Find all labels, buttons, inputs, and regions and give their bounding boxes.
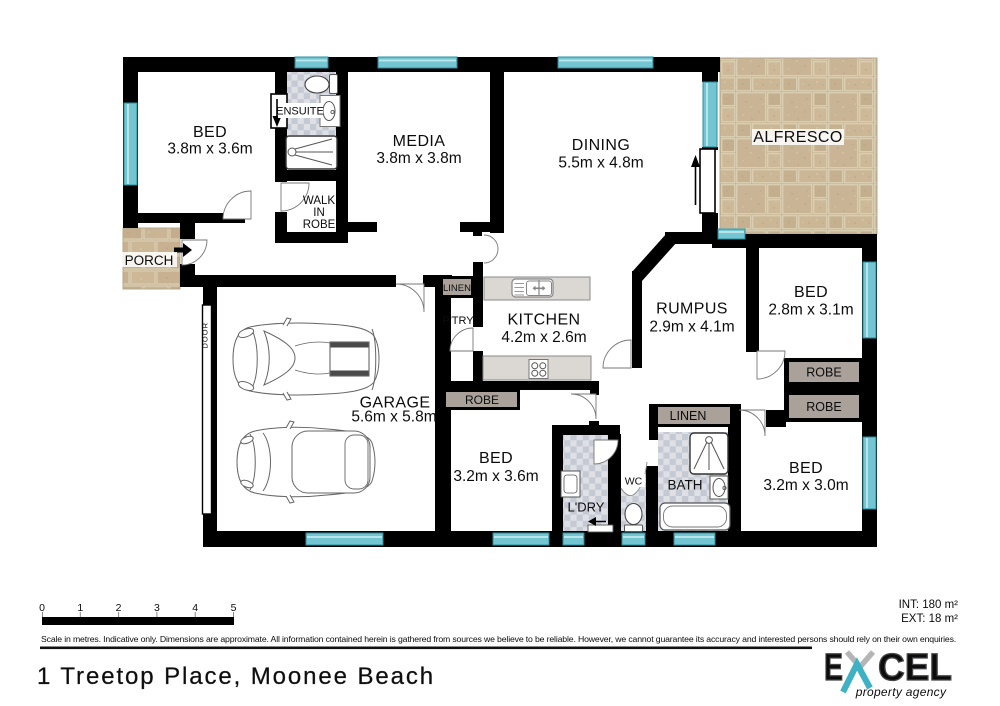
svg-text:ALFRESCO: ALFRESCO [753, 129, 842, 146]
svg-text:LINEN: LINEN [443, 283, 471, 294]
svg-text:3.8m x 3.6m: 3.8m x 3.6m [167, 141, 252, 158]
svg-text:CEL: CEL [878, 647, 952, 689]
svg-text:BED: BED [193, 124, 227, 141]
svg-text:3.8m x 3.8m: 3.8m x 3.8m [376, 150, 461, 167]
svg-text:L'DRY: L'DRY [568, 500, 605, 515]
svg-text:RUMPUS: RUMPUS [656, 301, 728, 318]
svg-text:LINEN: LINEN [670, 409, 707, 423]
svg-text:BED: BED [789, 460, 823, 477]
svg-text:E: E [824, 647, 843, 689]
svg-text:BED: BED [794, 284, 828, 301]
svg-text:WC: WC [625, 476, 643, 488]
svg-text:3.2m x 3.6m: 3.2m x 3.6m [453, 468, 538, 485]
svg-text:EXT: 18 m²: EXT: 18 m² [901, 613, 958, 625]
svg-text:1 Treetop Place, Moonee Beach: 1 Treetop Place, Moonee Beach [37, 663, 435, 690]
svg-text:BED: BED [479, 450, 513, 467]
svg-text:KITCHEN: KITCHEN [507, 312, 580, 329]
svg-text:property agency: property agency [855, 685, 947, 699]
svg-text:MEDIA: MEDIA [393, 133, 446, 150]
svg-text:5.5m x 4.8m: 5.5m x 4.8m [558, 155, 643, 172]
svg-text:WALK: WALK [303, 195, 335, 207]
svg-text:2.8m x 3.1m: 2.8m x 3.1m [768, 302, 853, 319]
svg-text:ROBE: ROBE [465, 393, 499, 407]
svg-text:4.2m x 2.6m: 4.2m x 2.6m [501, 329, 586, 346]
svg-text:DINING: DINING [572, 137, 630, 154]
svg-text:ROBE: ROBE [303, 219, 336, 231]
svg-text:P'TRY: P'TRY [442, 315, 474, 327]
svg-text:2.9m x 4.1m: 2.9m x 4.1m [649, 319, 734, 336]
svg-text:ROBE: ROBE [806, 400, 841, 414]
svg-text:ROBE: ROBE [806, 366, 841, 380]
svg-text:ENSUITE: ENSUITE [276, 106, 324, 118]
svg-text:INT: 180 m²: INT: 180 m² [899, 599, 959, 611]
svg-text:PORCH: PORCH [125, 253, 174, 268]
svg-text:Scale in metres. Indicative on: Scale in metres. Indicative only. Dimens… [41, 634, 956, 644]
svg-text:3.2m x 3.0m: 3.2m x 3.0m [763, 477, 848, 494]
svg-text:IN: IN [313, 207, 325, 219]
svg-text:DOOR: DOOR [201, 322, 210, 349]
svg-text:BATH: BATH [667, 478, 702, 493]
svg-text:5.6m x 5.8m: 5.6m x 5.8m [351, 409, 436, 426]
